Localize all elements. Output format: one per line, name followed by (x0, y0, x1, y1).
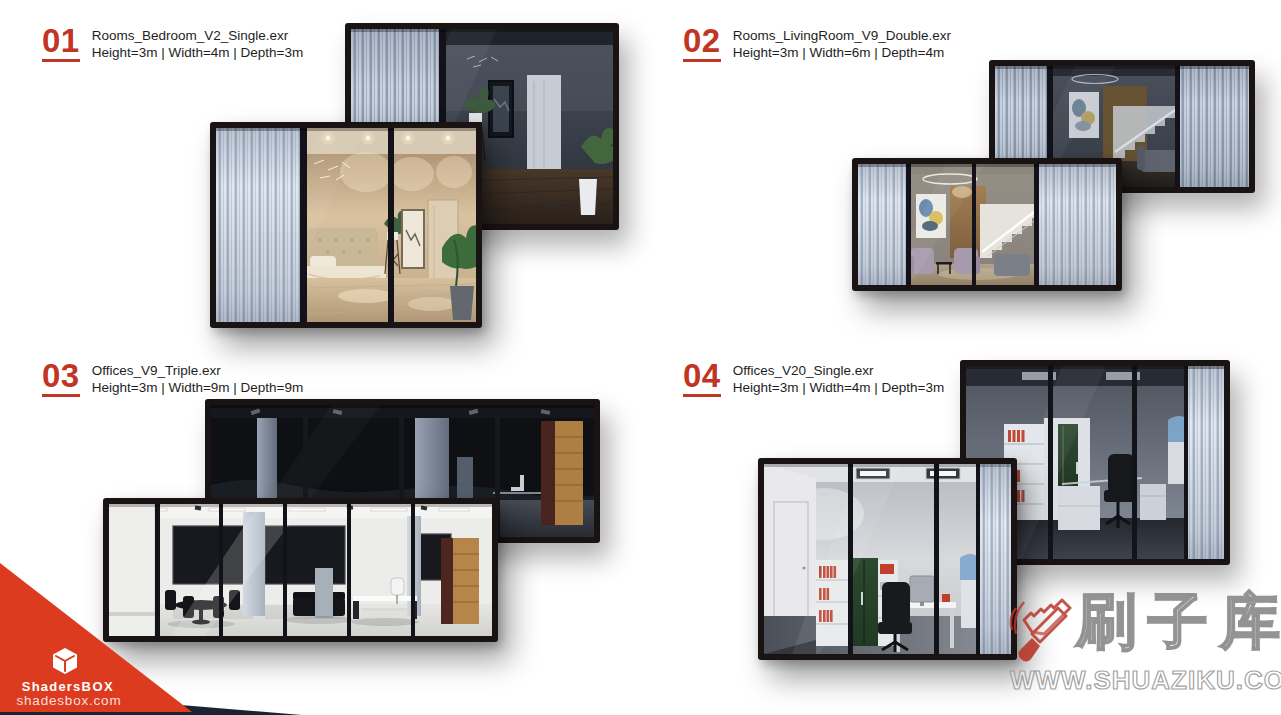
catalog-page: 01 Rooms_Bedroom_V2_Single.exr Height=3m… (0, 0, 1281, 715)
entry-03-number: 03 (42, 362, 80, 397)
render-04-office-front-image (758, 458, 1017, 660)
shadersbox-cube-logo-icon (51, 647, 79, 675)
entry-02-label: 02 Rooms_LivingRoom_V9_Double.exr Height… (683, 27, 951, 62)
entry-03-label: 03 Offices_V9_Triple.exr Height=3m | Wid… (42, 362, 303, 397)
paint-brush-icon (1002, 586, 1080, 670)
logo-text-suffix: BOX (82, 679, 115, 694)
entry-04-filename: Offices_V20_Single.exr (733, 362, 945, 379)
entry-01-filename: Rooms_Bedroom_V2_Single.exr (92, 27, 304, 44)
watermark-brand-text: 刷子库 (1076, 592, 1281, 652)
shadersbox-website: shadesbox.com (10, 693, 128, 708)
entry-02-dimensions: Height=3m | Width=6m | Depth=4m (733, 44, 951, 61)
entry-04-label: 04 Offices_V20_Single.exr Height=3m | Wi… (683, 362, 944, 397)
entry-04-number: 04 (683, 362, 721, 397)
entry-03-filename: Offices_V9_Triple.exr (92, 362, 304, 379)
entry-03-dimensions: Height=3m | Width=9m | Depth=9m (92, 379, 304, 396)
entry-02-filename: Rooms_LivingRoom_V9_Double.exr (733, 27, 951, 44)
entry-01-dimensions: Height=3m | Width=4m | Depth=3m (92, 44, 304, 61)
entry-04-dimensions: Height=3m | Width=4m | Depth=3m (733, 379, 945, 396)
entry-02-number: 02 (683, 27, 721, 62)
shadersbox-logo-text: ShadersBOX (14, 679, 122, 694)
render-01-bedroom-front-image (210, 122, 482, 328)
render-02-livingroom-front-image (852, 158, 1122, 291)
watermark-url-text: WWW.SHUAZIKU.COM (1010, 666, 1281, 695)
entry-01-number: 01 (42, 27, 80, 62)
logo-text-prefix: Shaders (22, 679, 82, 694)
entry-01-label: 01 Rooms_Bedroom_V2_Single.exr Height=3m… (42, 27, 303, 62)
